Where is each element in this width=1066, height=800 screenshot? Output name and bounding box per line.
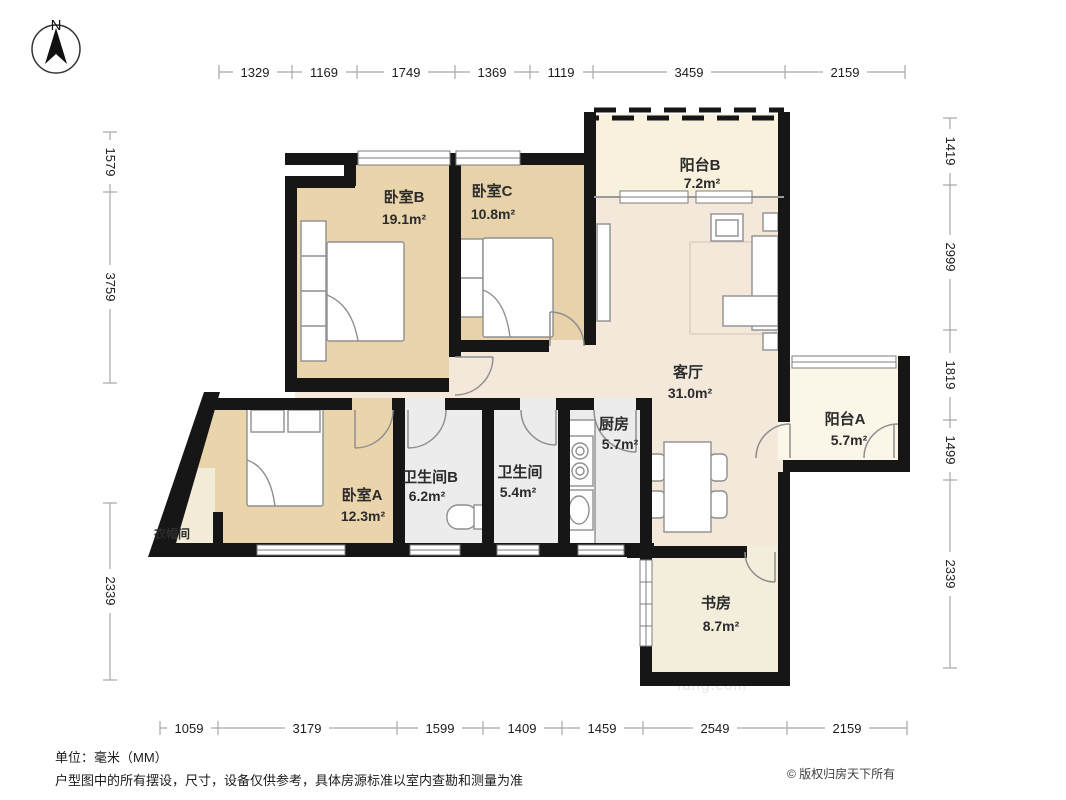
- door-opening: [778, 422, 790, 460]
- wall-segment: [449, 340, 549, 352]
- wall-segment: [213, 512, 223, 550]
- window: [456, 151, 520, 165]
- window: [497, 545, 539, 555]
- room-area-bedroom-b: 19.1m²: [382, 211, 427, 227]
- wall-segment: [482, 398, 494, 548]
- door-opening: [747, 546, 778, 558]
- door-opening: [449, 357, 461, 395]
- stove-icon: [566, 436, 593, 486]
- window: [792, 356, 896, 368]
- dim-right-1: 2999: [943, 243, 958, 272]
- window: [696, 191, 752, 203]
- dim-right-0: 1419: [943, 137, 958, 166]
- window: [578, 545, 624, 555]
- toilet-icon: [447, 505, 484, 529]
- dim-bottom-0: 1059: [175, 721, 204, 736]
- dim-bottom-3: 1409: [508, 721, 537, 736]
- room-label-bedroom-a: 卧室A: [342, 486, 383, 504]
- shelf-c-icon: [460, 239, 483, 317]
- dim-bottom-4: 1459: [588, 721, 617, 736]
- wall-segment: [558, 398, 570, 548]
- bed-b-icon: [327, 242, 404, 341]
- window: [410, 545, 460, 555]
- dim-top-2: 1749: [392, 65, 421, 80]
- window: [257, 545, 345, 555]
- wardrobe-icon: [301, 221, 326, 361]
- wall-segment: [898, 356, 910, 472]
- dim-bottom-6: 2159: [833, 721, 862, 736]
- wall-segment: [778, 365, 790, 422]
- room-area-kitchen: 5.7m²: [602, 436, 639, 452]
- study-floor: [650, 552, 784, 678]
- wall-segment: [778, 546, 790, 686]
- wall-segment: [640, 546, 652, 560]
- dim-bottom-5: 2549: [701, 721, 730, 736]
- room-label-bath: 卫生间: [497, 463, 542, 481]
- room-label-living: 客厅: [672, 363, 703, 381]
- room-label-study: 书房: [701, 594, 731, 612]
- room-label-bedroom-b: 卧室B: [384, 188, 425, 206]
- bed-c-icon: [483, 238, 553, 337]
- room-label-bedroom-c: 卧室C: [472, 182, 513, 200]
- dim-top-5: 3459: [675, 65, 704, 80]
- dim-right-2: 1819: [943, 361, 958, 390]
- wall-segment: [449, 153, 461, 357]
- hallway-floor: [449, 345, 594, 405]
- unit-note: 单位：毫米（MM）: [55, 747, 168, 766]
- door-opening: [549, 340, 584, 352]
- room-area-balcony-a: 5.7m²: [831, 432, 868, 448]
- wall-segment: [285, 378, 461, 392]
- room-area-balcony-b: 7.2m²: [684, 175, 721, 191]
- room-area-bedroom-c: 10.8m²: [471, 206, 516, 222]
- dim-right-3: 1499: [943, 436, 958, 465]
- dim-top-3: 1369: [478, 65, 507, 80]
- room-label-kitchen: 厨房: [599, 415, 629, 433]
- room-area-living: 31.0m²: [668, 385, 713, 401]
- room-area-bedroom-a: 12.3m²: [341, 508, 386, 524]
- dim-left-2: 2339: [103, 577, 118, 606]
- dim-left-0: 1579: [103, 148, 118, 177]
- wall-segment: [584, 112, 596, 345]
- room-area-study: 8.7m²: [703, 618, 740, 634]
- door-opening: [520, 398, 556, 410]
- bed-a-icon: [247, 407, 323, 506]
- dim-left-1: 3759: [103, 273, 118, 302]
- wall-segment: [778, 472, 790, 558]
- floorplan-canvas: fang.com fang.com: [0, 0, 1066, 800]
- room-area-bath-b: 6.2m²: [409, 488, 446, 504]
- compass-icon: N: [32, 17, 80, 73]
- dim-top-4: 1119: [548, 65, 575, 80]
- dim-top-6: 2159: [831, 65, 860, 80]
- room-label-bath-b: 卫生间B: [402, 468, 458, 486]
- dim-top-1: 1169: [310, 65, 338, 80]
- compass-north-label: N: [51, 17, 62, 34]
- disclaimer-text: 户型图中的所有摆设，尺寸，设备仅供参考，具体房源标准以室内查勘和测量为准: [55, 770, 523, 789]
- room-label-balcony-b: 阳台B: [680, 156, 721, 174]
- armchair-icon: [711, 214, 743, 241]
- wall-segment: [640, 646, 652, 686]
- window-vertical: [640, 560, 652, 646]
- wall-segment: [778, 112, 790, 365]
- dim-bottom-2: 1599: [426, 721, 455, 736]
- door-opening: [594, 398, 636, 410]
- door-opening: [405, 398, 445, 410]
- window: [620, 191, 688, 203]
- room-label-balcony-a: 阳台A: [825, 410, 866, 428]
- copyright-text: © 版权归房天下所有: [787, 765, 895, 782]
- room-area-bath: 5.4m²: [500, 484, 537, 500]
- wall-segment: [783, 460, 910, 472]
- wall-segment: [640, 398, 652, 548]
- dim-bottom-1: 3179: [293, 721, 322, 736]
- room-label-cloakroom: 衣帽间: [154, 526, 190, 541]
- window: [358, 151, 450, 165]
- wall-segment: [285, 176, 297, 392]
- sink-icon: [566, 490, 593, 530]
- wall-segment: [640, 672, 790, 686]
- door-opening: [352, 398, 392, 410]
- tv-stand-icon: [597, 224, 610, 321]
- dim-right-4: 2339: [943, 560, 958, 589]
- dim-top-0: 1329: [241, 65, 270, 80]
